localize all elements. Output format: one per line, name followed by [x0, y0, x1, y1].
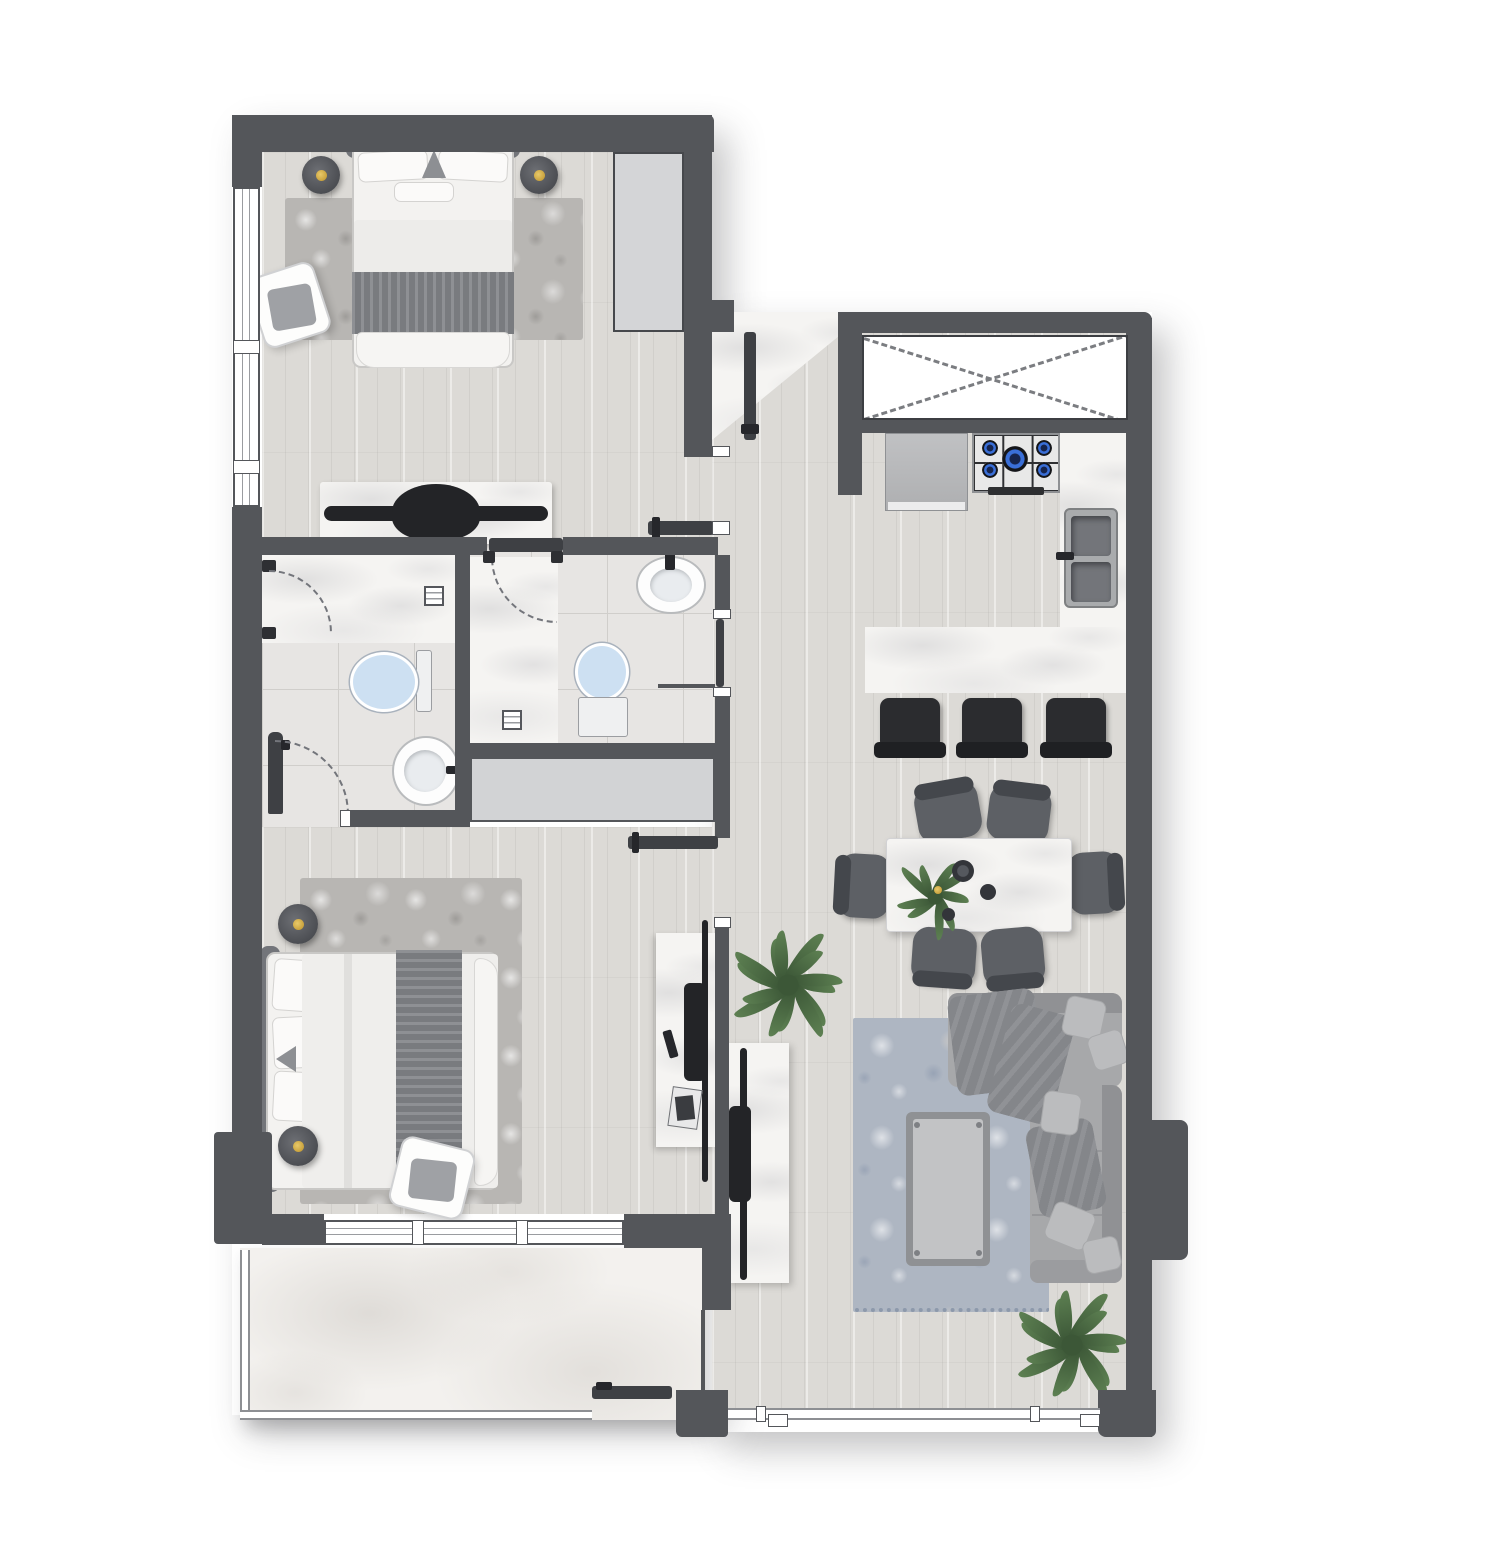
- living-track-jamb-right: [1080, 1414, 1100, 1427]
- kitchen-sink-faucet: [1056, 552, 1074, 560]
- master-console-magazine-top: [675, 1095, 695, 1121]
- coffee-table-dot-2: [976, 1122, 982, 1128]
- balcony-door-handle: [596, 1382, 612, 1390]
- bedroom1-door-jamb-bottom: [712, 521, 730, 535]
- bathroom1-toilet-tank: [416, 650, 432, 712]
- wall-bedroom1-right: [684, 115, 712, 457]
- dining-chair-bottom-2: [980, 925, 1047, 988]
- balcony-rail-bottom: [240, 1410, 592, 1420]
- refrigerator-door-edge: [888, 502, 965, 510]
- bathroom1-door-jamb: [340, 810, 351, 827]
- hall-potted-plant: [736, 933, 840, 1037]
- master-tv-body: [684, 983, 706, 1081]
- coffee-table-dot-4: [976, 1250, 982, 1256]
- bedroom1-tv-base: [392, 484, 480, 540]
- bathroom2-toilet-tank: [578, 697, 628, 737]
- bathroom2-toilet-partition: [658, 684, 715, 688]
- bed1-lamp-left-bulb: [316, 170, 327, 181]
- entry-door-handle: [741, 424, 759, 434]
- bar-stool-2-back: [956, 742, 1028, 758]
- hall-storage-closet: [470, 757, 715, 822]
- master-lamp-top-bulb: [293, 919, 304, 930]
- dining-chair-top-2: [985, 782, 1053, 845]
- bed1-pillow-right: [437, 149, 508, 183]
- coffee-table-dot-3: [914, 1250, 920, 1256]
- coffee-table-dot-1: [914, 1122, 920, 1128]
- bathroom1-door-arc: [275, 740, 349, 814]
- living-tv-body: [729, 1106, 751, 1202]
- bathroom1-shower-drain: [424, 586, 444, 606]
- bathroom1-shower-door-arc: [269, 570, 332, 633]
- wall-bedroom1-top: [232, 115, 714, 152]
- bathroom1-sink-basin: [404, 750, 446, 792]
- bathroom2-sink-basin: [650, 568, 692, 602]
- master-door-jamb: [714, 917, 731, 928]
- master-window-tick-1: [412, 1220, 424, 1245]
- bedroom1-door-handle: [652, 517, 660, 539]
- bedroom1-window-tick-2: [233, 460, 260, 474]
- bathroom2-toilet-bowl: [575, 643, 629, 701]
- dining-bowl-3: [942, 908, 955, 921]
- wall-right: [1126, 318, 1152, 1437]
- bed1-lamp-right-bulb: [534, 170, 545, 181]
- wall-left-long: [232, 507, 262, 1137]
- bathroom2-panel-post-left: [483, 551, 495, 563]
- wall-bathroom1-bottom: [350, 810, 470, 827]
- dining-gold-dish: [934, 886, 942, 894]
- wall-master-partition: [715, 928, 729, 1216]
- wall-bath-top-right: [563, 537, 718, 555]
- utility-shaft: [862, 335, 1128, 420]
- coffee-table: [906, 1112, 990, 1266]
- wall-balcony-divider: [702, 1248, 731, 1310]
- bathroom2-door-leaf: [716, 619, 724, 687]
- master-window-tick-2: [516, 1220, 528, 1245]
- bed1-pillow-left: [357, 149, 428, 183]
- wall-right-bump: [1126, 1120, 1188, 1260]
- hob-burner-center: [1002, 446, 1028, 472]
- hob-control-strip: [988, 487, 1044, 495]
- master-lamp-bottom-bulb: [293, 1141, 304, 1152]
- wall-left-corner: [232, 115, 262, 187]
- bathroom2-shower-panel: [489, 538, 563, 552]
- wall-hall-upper: [715, 555, 730, 609]
- dining-bowl-1: [952, 860, 974, 882]
- dining-chair-left: [836, 853, 891, 920]
- bathroom2-door-jamb-top: [713, 609, 731, 619]
- sliding-track-tick-2: [1030, 1406, 1040, 1422]
- wall-bath-top-left: [262, 537, 487, 555]
- master-duvet-fold: [344, 954, 352, 1188]
- master-door-handle: [632, 832, 639, 853]
- wall-balcony-door-block: [676, 1390, 728, 1437]
- living-track-jamb-left: [768, 1414, 788, 1427]
- sliding-track-tick-1: [756, 1406, 766, 1422]
- sofa-pillow-3: [1039, 1090, 1082, 1137]
- wall-between-bathrooms: [455, 555, 470, 827]
- bathroom2-shower-drain: [502, 710, 522, 730]
- bed1-small-pillow: [394, 182, 454, 202]
- balcony-rail-left: [240, 1250, 250, 1416]
- master-sliding-window: [324, 1220, 624, 1245]
- living-potted-plant: [1020, 1293, 1124, 1397]
- wall-hall-lower: [715, 697, 730, 838]
- master-foot-blanket: [474, 958, 498, 1186]
- bathroom1-toilet-bowl: [350, 652, 418, 712]
- bathroom2-shower-door-arc: [491, 557, 557, 623]
- kitchen-sink-basin-top: [1071, 516, 1111, 556]
- hob-burner-2: [1036, 440, 1052, 456]
- dining-chair-bottom-1: [910, 926, 978, 986]
- dining-chair-right: [1066, 851, 1121, 916]
- wall-master-bottom-left: [262, 1214, 324, 1245]
- wall-master-bottom-right: [624, 1214, 731, 1248]
- shaft-diagonal-2: [864, 335, 1128, 420]
- refrigerator: [885, 433, 968, 511]
- bathroom2-door-jamb-bottom: [713, 687, 731, 697]
- bar-stool-3-back: [1040, 742, 1112, 758]
- balcony-glass-partition: [701, 1310, 705, 1390]
- wall-kitchen-left-stub: [838, 312, 862, 495]
- wall-bathroom2-bottom: [470, 743, 715, 757]
- wall-entry-stub: [684, 300, 734, 332]
- breakfast-bar-counter: [865, 627, 1126, 693]
- kitchen-sink-basin-bottom: [1071, 562, 1111, 602]
- hob-burner-3: [982, 462, 998, 478]
- bedroom1-wardrobe-niche: [613, 152, 684, 332]
- bed1-foot-blanket: [356, 332, 510, 368]
- bedroom1-door-jamb-top: [712, 446, 730, 457]
- hob-burner-4: [1036, 462, 1052, 478]
- bedroom1-window-tick-1: [233, 340, 260, 354]
- master-door-leaf: [628, 836, 718, 849]
- bathroom2-panel-post-right: [551, 551, 563, 563]
- bed1-runner-blanket: [352, 272, 514, 334]
- bar-stool-1-back: [874, 742, 946, 758]
- wall-below-shaft: [838, 420, 1152, 433]
- bed1-duvet: [354, 220, 512, 276]
- dining-bowl-2: [980, 884, 996, 900]
- floor-plan-canvas: [0, 0, 1498, 1544]
- wall-kitchen-top: [838, 312, 1152, 333]
- hob-burner-1: [982, 440, 998, 456]
